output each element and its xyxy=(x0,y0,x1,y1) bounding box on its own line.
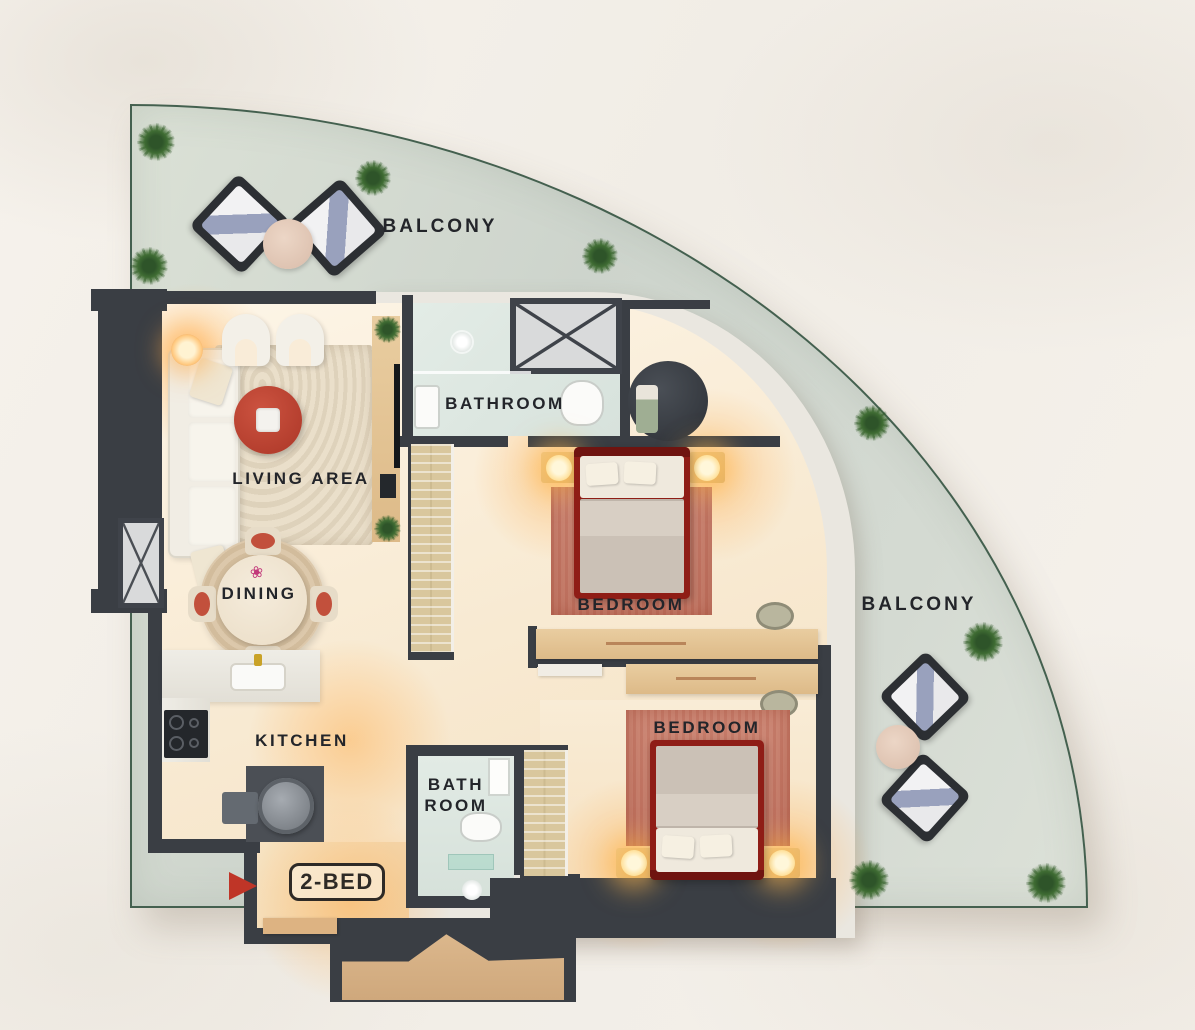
armchair-seat xyxy=(289,339,311,366)
label-balcony-right: BALCONY xyxy=(862,594,977,616)
armchair xyxy=(222,314,270,366)
plant xyxy=(355,160,391,196)
dining-chair xyxy=(188,586,216,622)
label-bedroom-1: BEDROOM xyxy=(578,595,685,615)
lamp-icon xyxy=(769,850,795,876)
bathroom1-sink xyxy=(414,385,440,429)
burner xyxy=(169,736,184,751)
window-shaft-icon xyxy=(118,518,164,608)
label-bathroom-main: BATHROOM xyxy=(445,394,565,414)
wall-column-top xyxy=(622,300,710,309)
lamp-icon xyxy=(546,455,572,481)
wall-bath2-top xyxy=(406,745,522,756)
label-balcony-top: BALCONY xyxy=(383,216,498,238)
burner xyxy=(189,738,199,748)
blanket xyxy=(580,499,684,593)
wall-entry-right xyxy=(546,896,576,936)
flower-icon: ❀ xyxy=(248,560,271,583)
wall-bath1-left xyxy=(402,295,413,443)
floor-plan-canvas: ❀ 2-BED xyxy=(0,0,1195,1030)
kitchen-sink xyxy=(230,663,286,691)
label-dining: DINING xyxy=(221,584,296,604)
toilet xyxy=(560,380,604,426)
armchair xyxy=(276,314,324,366)
unit-badge-label: 2-BED xyxy=(300,869,374,895)
shower-head-icon xyxy=(452,332,472,352)
lamp-icon xyxy=(694,455,720,481)
nightstand xyxy=(541,452,577,483)
shower-divider xyxy=(413,371,531,374)
wall-bedroom2-right xyxy=(816,645,831,883)
sofa-seat xyxy=(188,486,236,546)
entrance-arrow-icon xyxy=(229,872,257,900)
pillow xyxy=(699,834,732,858)
wall-living-top xyxy=(160,291,376,304)
side-table xyxy=(876,725,920,769)
coffee-table-tray xyxy=(256,408,280,432)
side-table xyxy=(263,219,313,269)
faucet-icon xyxy=(254,654,262,666)
bathroom-plant-decor xyxy=(636,385,658,433)
burner xyxy=(189,718,199,728)
blanket xyxy=(656,746,758,828)
plant xyxy=(137,123,175,161)
label-bedroom-2: BEDROOM xyxy=(654,718,761,738)
glass-shelf xyxy=(448,854,494,870)
appliance-box xyxy=(222,792,258,824)
plant xyxy=(849,860,889,900)
bed xyxy=(574,447,690,599)
desk xyxy=(536,629,818,659)
pillow xyxy=(661,835,694,859)
floor-lamp xyxy=(171,334,203,366)
washer xyxy=(258,778,314,834)
coffee-table xyxy=(234,386,302,454)
wardrobe xyxy=(408,444,454,656)
plant xyxy=(582,238,618,274)
mirror-cabinet xyxy=(488,758,510,796)
plant xyxy=(130,247,168,285)
wardrobe xyxy=(521,750,568,876)
toilet xyxy=(460,812,502,842)
plant xyxy=(854,405,890,441)
sofa-seat xyxy=(188,422,236,482)
wall-bath2-left xyxy=(406,745,418,908)
pillow xyxy=(585,462,618,486)
bed xyxy=(650,740,764,880)
unit-badge: 2-BED xyxy=(289,863,385,901)
plant xyxy=(963,622,1003,662)
armchair-seat xyxy=(235,339,257,366)
stove xyxy=(164,710,208,758)
dining-chair xyxy=(245,527,281,555)
sofa xyxy=(168,348,240,558)
label-living-area: LIVING AREA xyxy=(232,469,370,489)
hall-shelf xyxy=(538,664,602,676)
lamp-icon xyxy=(621,850,647,876)
window-shaft-icon xyxy=(510,298,622,374)
burner xyxy=(169,715,184,730)
desk xyxy=(626,664,818,694)
nightstand xyxy=(616,848,652,878)
plant xyxy=(374,316,401,343)
chair-seat xyxy=(251,533,275,549)
media-box xyxy=(380,474,396,498)
pillow xyxy=(623,461,656,485)
plant xyxy=(374,515,401,542)
nightstand xyxy=(764,848,800,878)
desk-chair xyxy=(756,602,794,630)
wardrobe1-cap-bottom xyxy=(408,652,454,660)
dining-chair xyxy=(310,586,338,622)
tv xyxy=(394,364,400,468)
desk-handle xyxy=(676,677,756,680)
label-bath2-line2: ROOM xyxy=(424,796,487,816)
nightstand xyxy=(689,452,725,483)
shower-head-icon xyxy=(462,880,482,900)
chair-seat xyxy=(194,592,210,616)
plant xyxy=(1026,863,1066,903)
label-kitchen: KITCHEN xyxy=(255,731,349,751)
chair-seat xyxy=(316,592,332,616)
wall-kitchen-left xyxy=(148,611,162,839)
label-bath2-line1: BATH xyxy=(428,775,484,795)
desk-handle xyxy=(606,642,686,645)
entry-bench xyxy=(263,918,337,934)
